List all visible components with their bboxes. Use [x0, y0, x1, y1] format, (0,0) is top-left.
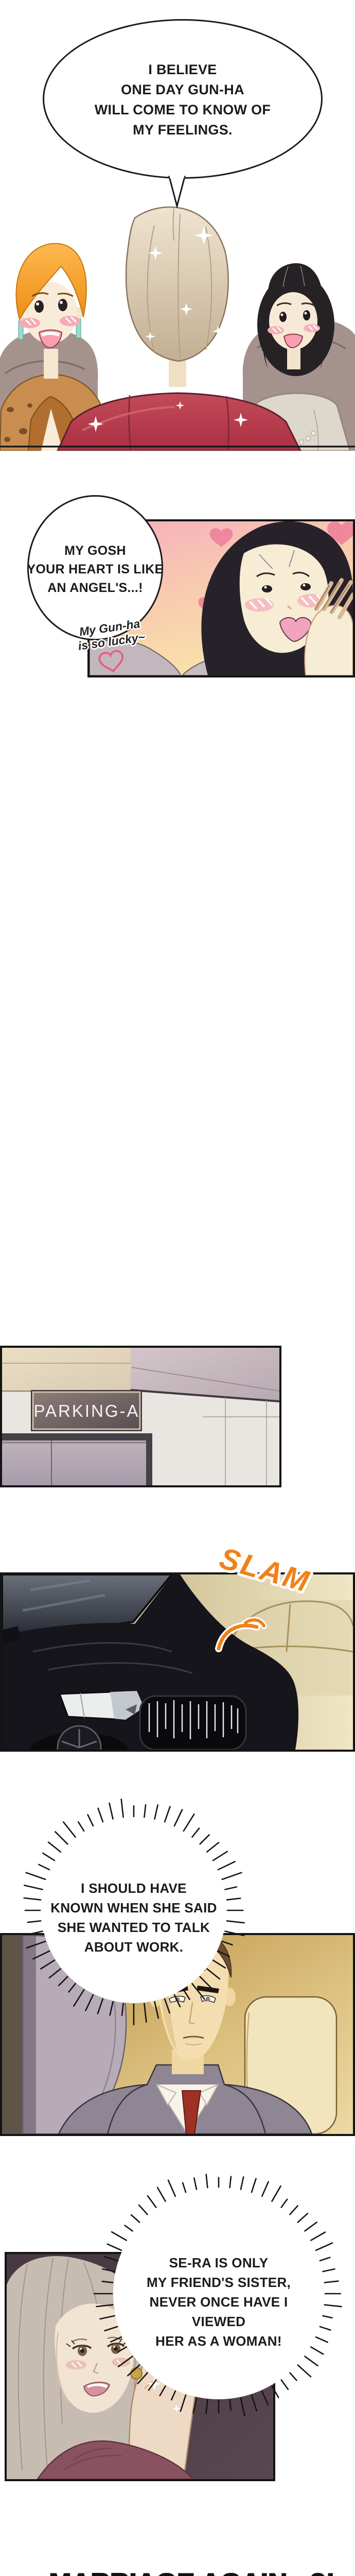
- dialogue-line: YOUR HEART IS LIKE: [23, 560, 167, 579]
- panel-parking-garage: PARKING-A: [0, 1346, 281, 1487]
- dialogue-line: MY GOSH: [23, 541, 167, 560]
- dialogue-line: AN ANGEL'S...!: [23, 579, 167, 597]
- parking-sign-label: PARKING-A: [32, 1391, 141, 1431]
- woman-bob-hair-back: [126, 207, 228, 387]
- garage-entrance: [2, 1433, 152, 1485]
- dialogue-line: ABOUT WORK.: [46, 1937, 221, 1957]
- dialogue-line: MY FEELINGS.: [90, 120, 275, 140]
- dialogue-line: NEVER ONCE HAVE I VIEWED: [123, 2292, 314, 2331]
- garage-wall: [2, 1348, 144, 1392]
- table-edge-line: [0, 446, 355, 448]
- dialogue-line: SHE WANTED TO TALK: [46, 1918, 221, 1937]
- dialogue-line: I BELIEVE: [90, 60, 275, 80]
- dialogue-line: HER AS A WOMAN!: [123, 2331, 314, 2351]
- dialogue-line: WILL COME TO KNOW OF: [90, 100, 275, 120]
- dialogue-line: ONE DAY GUN-HA: [90, 80, 275, 100]
- burst-bubble-2-text: SE-RA IS ONLY MY FRIEND'S SISTER, NEVER …: [123, 2253, 314, 2351]
- black-car-illustration: [2, 1574, 353, 1750]
- lounge-scene-illustration: [0, 204, 355, 451]
- dialogue-line: SE-RA IS ONLY: [123, 2253, 314, 2273]
- dialogue-line: KNOWN WHEN SHE SAID: [46, 1898, 221, 1918]
- burst-bubble-1-text: I SHOULD HAVE KNOWN WHEN SHE SAID SHE WA…: [46, 1878, 221, 1957]
- speech-bubble-1-tail: [165, 174, 196, 208]
- caption-marriage-again: MARRIAGE AGAIN...?!: [49, 2567, 316, 2576]
- speech-bubble-1-text: I BELIEVE ONE DAY GUN-HA WILL COME TO KN…: [90, 60, 275, 140]
- dialogue-line: I SHOULD HAVE: [46, 1878, 221, 1898]
- dialogue-line: MY FRIEND'S SISTER,: [123, 2273, 314, 2292]
- slam-motion-swoosh: [214, 1617, 270, 1660]
- car-grille: [140, 1696, 246, 1750]
- panel-black-car: [0, 1572, 355, 1752]
- heart-icon: [98, 648, 125, 675]
- speech-bubble-2-text: MY GOSH YOUR HEART IS LIKE AN ANGEL'S...…: [23, 541, 167, 597]
- webtoon-page: I BELIEVE ONE DAY GUN-HA WILL COME TO KN…: [0, 0, 355, 2576]
